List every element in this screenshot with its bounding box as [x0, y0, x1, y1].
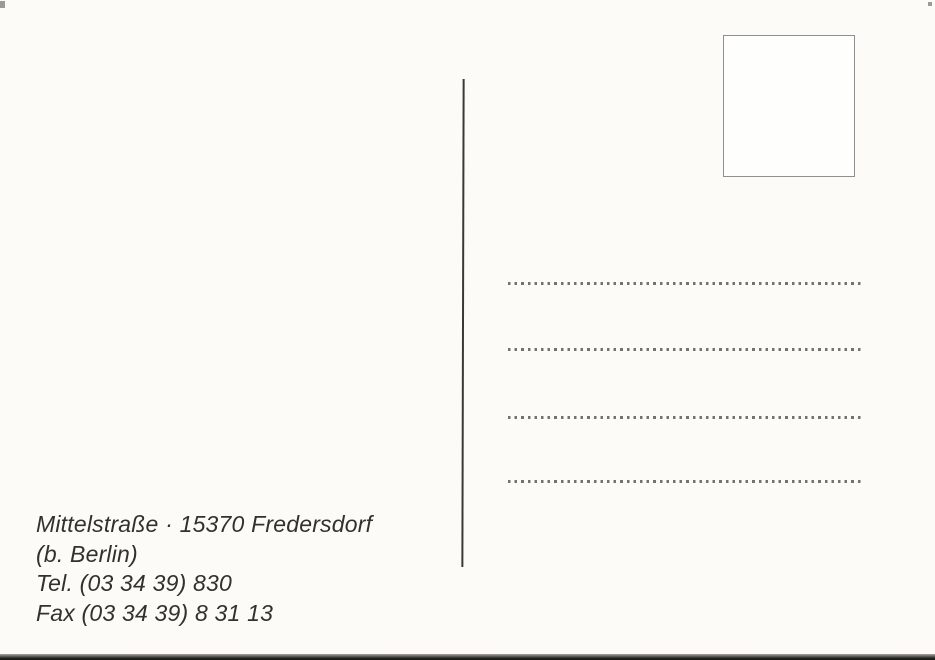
scan-artifact — [928, 2, 932, 6]
address-line — [508, 282, 862, 285]
postcard-back: Mittelstraße · 15370 Fredersdorf (b. Ber… — [0, 0, 935, 660]
sender-street-line: Mittelstraße · 15370 Fredersdorf — [36, 510, 372, 540]
scan-artifact — [0, 1, 5, 8]
sender-phone-line: Tel. (03 34 39) 830 — [36, 569, 372, 599]
scan-edge — [0, 654, 935, 660]
stamp-box — [723, 35, 855, 177]
address-line — [508, 348, 862, 351]
sender-city-line: (b. Berlin) — [36, 540, 372, 570]
address-line — [508, 480, 862, 483]
divider-line — [461, 79, 464, 567]
address-line — [508, 416, 862, 419]
sender-address: Mittelstraße · 15370 Fredersdorf (b. Ber… — [36, 510, 372, 628]
sender-fax-line: Fax (03 34 39) 8 31 13 — [36, 599, 372, 629]
